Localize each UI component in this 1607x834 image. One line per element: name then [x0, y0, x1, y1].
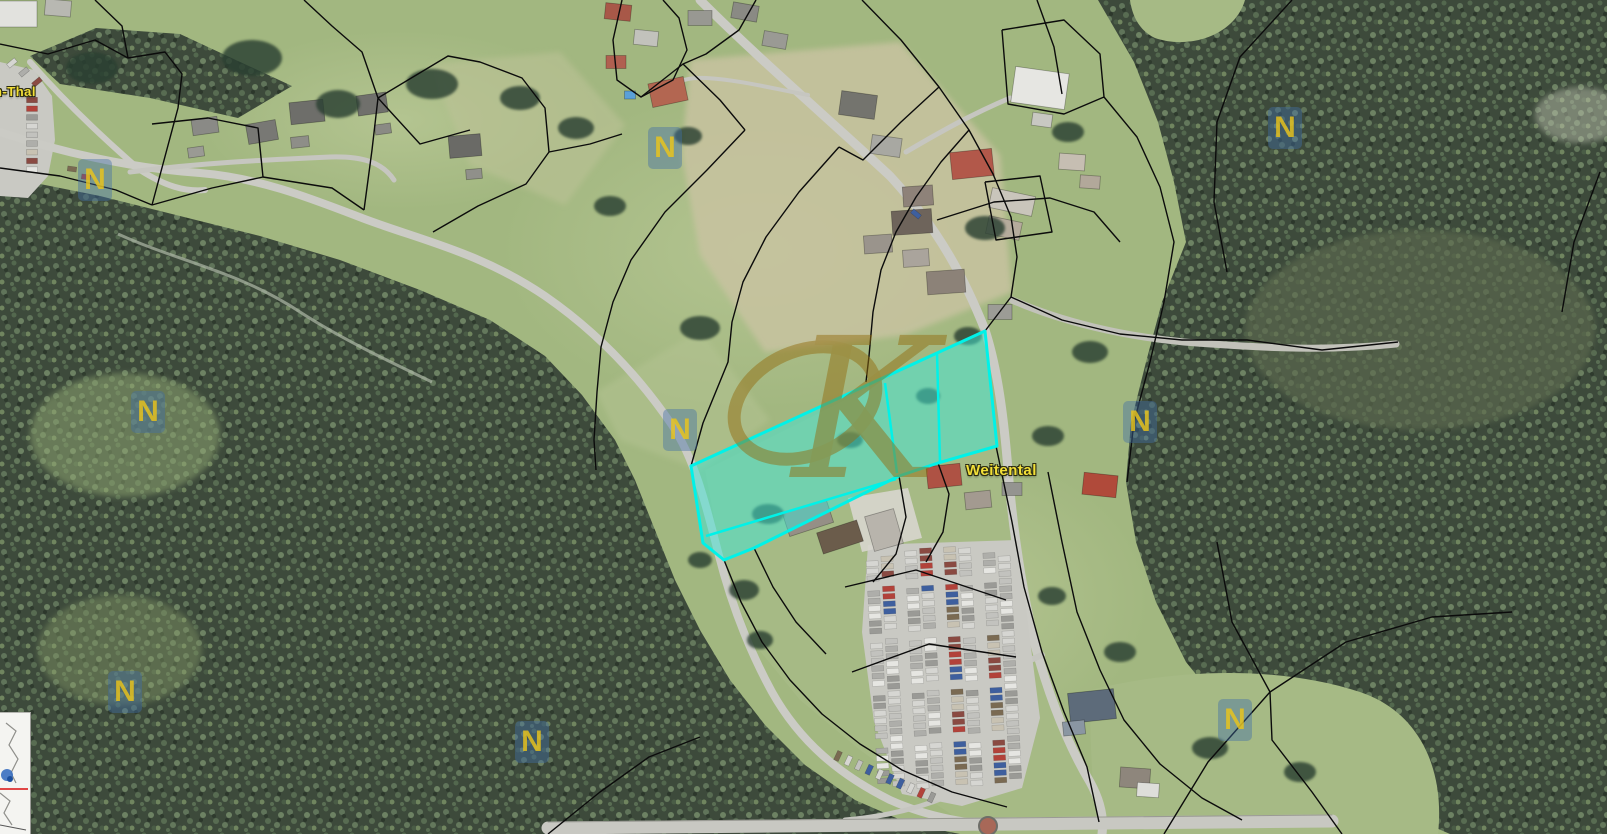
tree — [222, 40, 282, 76]
building — [1082, 472, 1118, 497]
tree — [1038, 587, 1066, 605]
tree — [1072, 341, 1108, 363]
building — [964, 490, 992, 510]
building — [1137, 782, 1160, 798]
tree — [747, 631, 773, 649]
tree — [965, 216, 1005, 240]
building — [839, 91, 878, 120]
building — [902, 185, 933, 207]
building — [926, 269, 966, 295]
building — [1062, 720, 1085, 736]
tree — [558, 117, 594, 139]
building — [1080, 175, 1101, 189]
aerial-map-canvas[interactable] — [0, 0, 1607, 834]
building — [466, 168, 483, 179]
building — [1058, 153, 1085, 171]
tree — [674, 127, 702, 145]
overview-inset-map[interactable] — [0, 712, 31, 834]
building — [187, 146, 204, 158]
building — [374, 123, 391, 135]
tree — [594, 196, 626, 216]
round-kiosk-building — [979, 817, 997, 834]
building — [633, 29, 658, 46]
building — [688, 11, 712, 26]
tree — [1032, 426, 1064, 446]
tree — [1284, 762, 1316, 782]
building — [290, 136, 309, 149]
tree — [680, 316, 720, 340]
tree — [1192, 737, 1228, 759]
map-viewport[interactable]: K NNNNNNNNN n-Thal Weitental — [0, 0, 1607, 834]
tree — [1052, 122, 1084, 142]
tree — [688, 552, 712, 568]
tree — [500, 86, 540, 110]
building — [1068, 689, 1117, 724]
tree — [316, 90, 360, 118]
tree — [66, 52, 118, 84]
building — [1031, 112, 1053, 128]
building — [902, 249, 929, 268]
building — [926, 463, 962, 488]
building — [448, 134, 482, 159]
tree — [406, 69, 458, 99]
building — [0, 1, 37, 27]
tree — [1104, 642, 1136, 662]
building — [44, 0, 71, 17]
